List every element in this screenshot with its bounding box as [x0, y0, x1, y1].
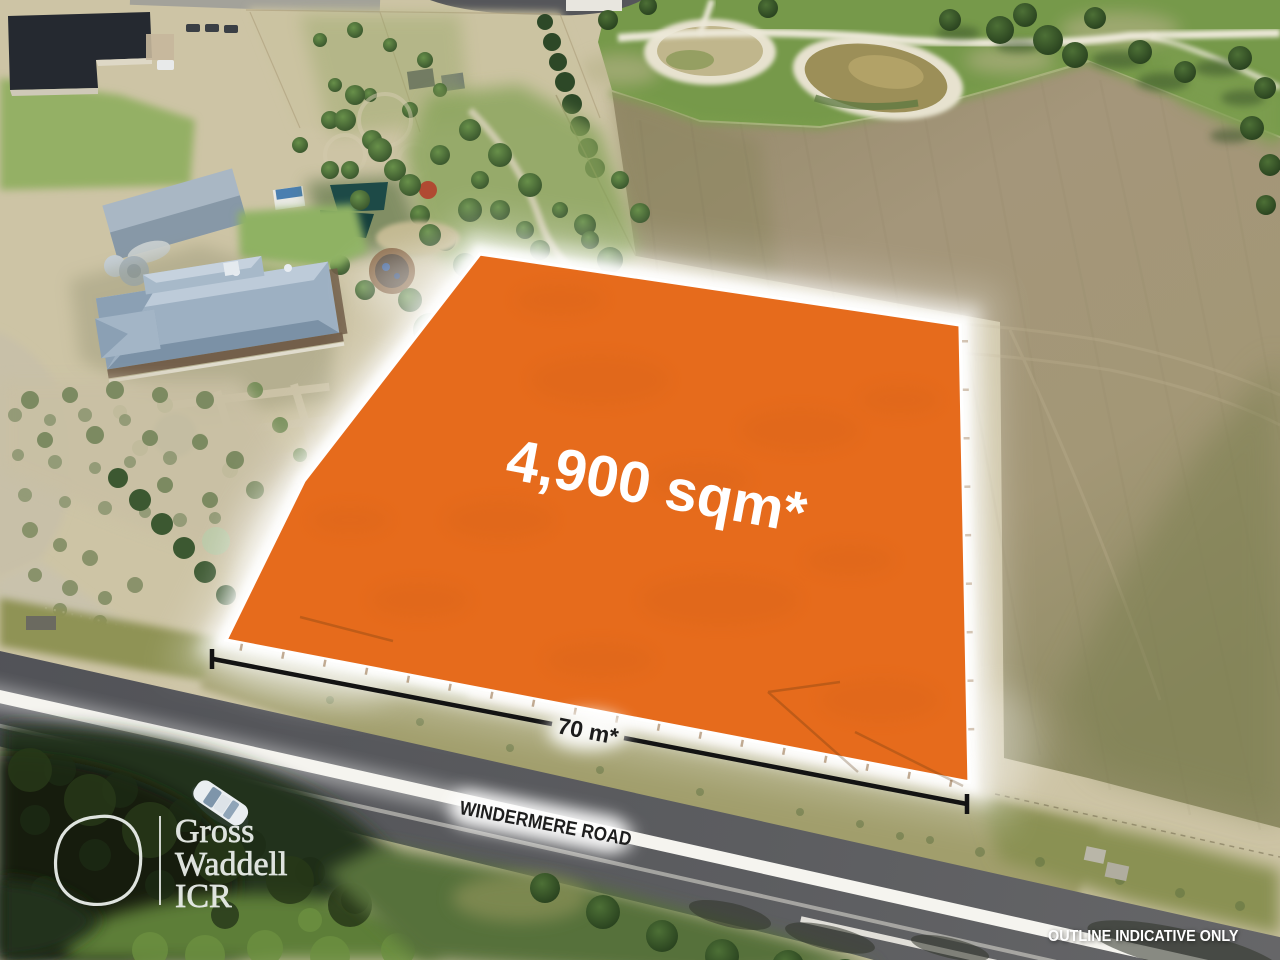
svg-text:OUTLINE INDICATIVE ONLY: OUTLINE INDICATIVE ONLY	[1048, 928, 1238, 946]
svg-text:Gross: Gross	[175, 813, 254, 850]
svg-text:ICR: ICR	[175, 878, 232, 915]
